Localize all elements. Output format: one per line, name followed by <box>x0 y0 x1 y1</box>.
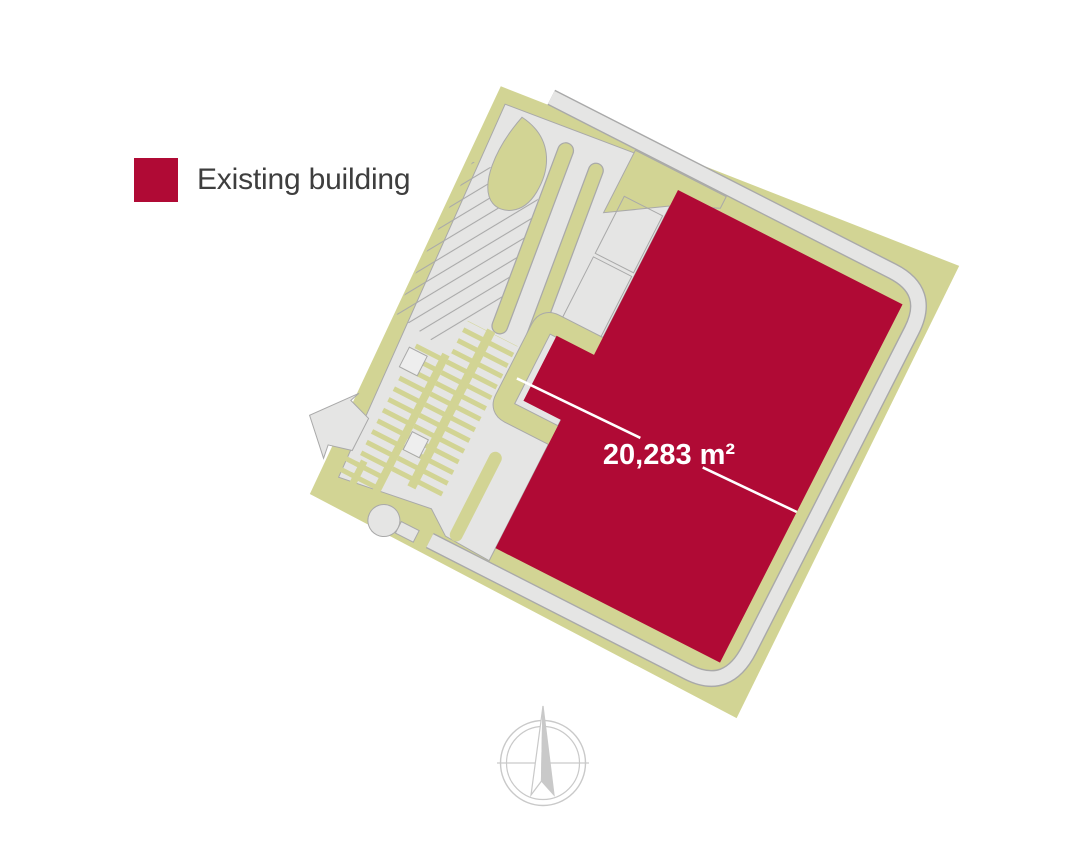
site-plan-svg: 20,283 m² <box>0 0 1090 842</box>
compass-needle-west <box>531 706 543 795</box>
legend-swatch <box>134 158 178 202</box>
page: 20,283 m² Existing building <box>0 0 1090 842</box>
legend-label: Existing building <box>197 158 410 202</box>
legend-swatch-rect <box>134 158 178 202</box>
compass-needle-east <box>542 706 555 795</box>
compass-rose <box>497 706 589 806</box>
legend: Existing building <box>134 158 410 202</box>
area-label: 20,283 m² <box>603 439 736 471</box>
